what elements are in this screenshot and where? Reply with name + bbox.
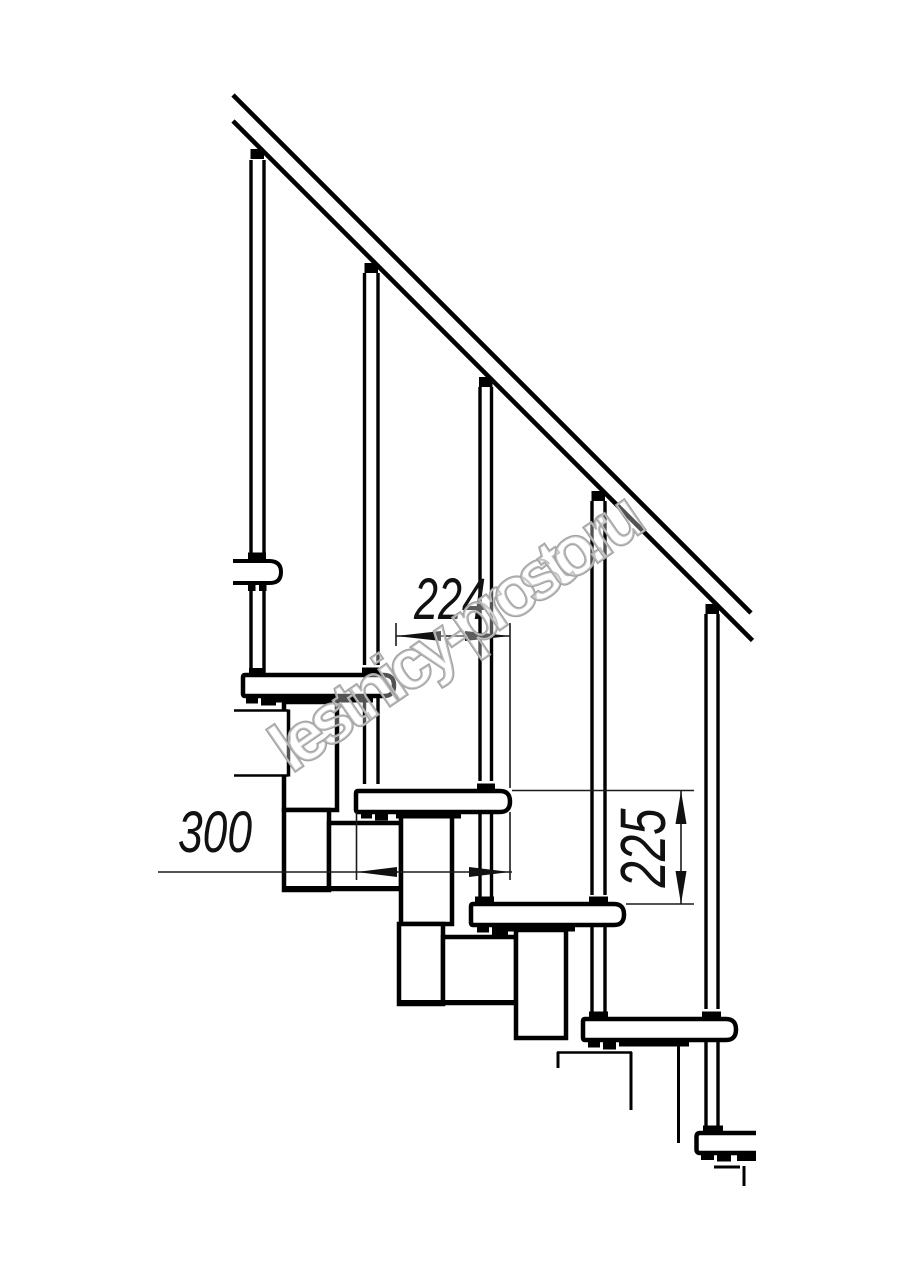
- svg-text:225: 225: [607, 808, 679, 888]
- svg-text:300: 300: [178, 800, 252, 865]
